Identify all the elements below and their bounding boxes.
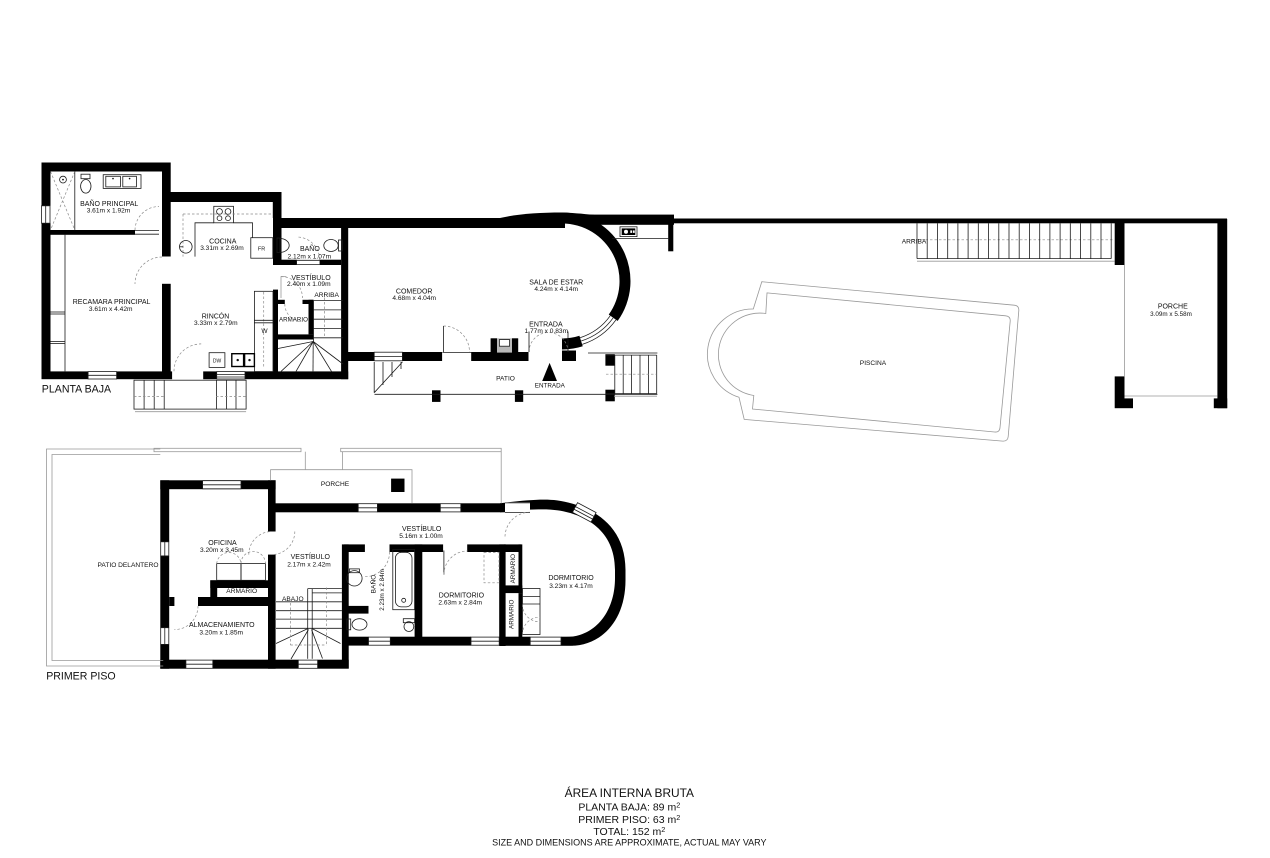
svg-text:PLANTA BAJA: PLANTA BAJA: [42, 384, 112, 396]
svg-text:DW: DW: [213, 358, 222, 364]
svg-text:1.77m x 0.83m: 1.77m x 0.83m: [524, 328, 568, 335]
svg-text:2.63m x 2.84m: 2.63m x 2.84m: [438, 600, 482, 607]
svg-text:FR: FR: [258, 247, 265, 253]
svg-text:OFICINA: OFICINA: [208, 540, 237, 547]
svg-text:3.09m x 5.58m: 3.09m x 5.58m: [1150, 311, 1192, 318]
svg-text:DORMITORIO: DORMITORIO: [548, 575, 594, 582]
svg-text:PISCINA: PISCINA: [860, 360, 887, 367]
svg-text:3.31m x 2.69m: 3.31m x 2.69m: [200, 245, 244, 252]
svg-text:3.23m x 4.17m: 3.23m x 4.17m: [549, 583, 593, 590]
svg-text:ARMARIO: ARMARIO: [509, 600, 516, 629]
svg-text:SIZE AND DIMENSIONS ARE APPROX: SIZE AND DIMENSIONS ARE APPROXIMATE, ACT…: [492, 838, 766, 848]
svg-text:PORCHE: PORCHE: [321, 481, 350, 488]
svg-text:PLANTA BAJA: 89 m2: PLANTA BAJA: 89 m2: [578, 800, 680, 813]
svg-text:VESTÍBULO: VESTÍBULO: [291, 552, 331, 561]
svg-text:3.33m x 2.79m: 3.33m x 2.79m: [194, 320, 238, 327]
svg-text:ARMARIO: ARMARIO: [226, 588, 257, 595]
svg-text:ENTRADA: ENTRADA: [535, 383, 566, 390]
svg-text:DORMITORIO: DORMITORIO: [439, 593, 485, 600]
svg-text:PORCHE: PORCHE: [1158, 304, 1188, 311]
svg-text:ABAJO: ABAJO: [282, 596, 304, 603]
svg-text:TOTAL: 152 m2: TOTAL: 152 m2: [593, 825, 665, 838]
svg-text:PATIO DELANTERO: PATIO DELANTERO: [98, 562, 159, 569]
svg-text:3.20m x 1.85m: 3.20m x 1.85m: [199, 630, 243, 637]
svg-text:RECAMARA PRINCIPAL: RECAMARA PRINCIPAL: [73, 299, 151, 306]
svg-text:VESTÍBULO: VESTÍBULO: [402, 524, 442, 533]
svg-text:3.61m x 4.42m: 3.61m x 4.42m: [89, 306, 133, 313]
svg-text:4.24m x 4.14m: 4.24m x 4.14m: [534, 286, 578, 293]
svg-text:2.12m x 1.07m: 2.12m x 1.07m: [287, 253, 331, 260]
svg-text:ALMACENAMIENTO: ALMACENAMIENTO: [189, 622, 255, 629]
svg-text:ARRIBA: ARRIBA: [902, 238, 927, 245]
svg-text:PRIMER PISO: PRIMER PISO: [46, 671, 115, 683]
svg-text:ARMARIO: ARMARIO: [510, 554, 517, 583]
svg-text:BAÑO: BAÑO: [300, 244, 320, 253]
svg-text:ARRIBA: ARRIBA: [314, 292, 339, 299]
svg-text:ARMARIO: ARMARIO: [279, 317, 308, 324]
svg-text:BAÑO: BAÑO: [369, 575, 378, 594]
svg-text:3.61m x 1.92m: 3.61m x 1.92m: [87, 208, 131, 215]
svg-text:ÁREA INTERNA BRUTA: ÁREA INTERNA BRUTA: [565, 785, 694, 800]
svg-text:2.40m x 1.09m: 2.40m x 1.09m: [287, 281, 331, 288]
svg-text:2.17m x 2.42m: 2.17m x 2.42m: [287, 562, 331, 569]
svg-text:W: W: [261, 328, 268, 335]
svg-text:PATIO: PATIO: [496, 376, 515, 383]
svg-text:2.23m x 2.84m: 2.23m x 2.84m: [379, 569, 386, 611]
svg-text:5.16m x 1.00m: 5.16m x 1.00m: [399, 533, 443, 540]
svg-text:4.68m x 4.04m: 4.68m x 4.04m: [392, 295, 436, 302]
svg-text:3.20m x 3.45m: 3.20m x 3.45m: [200, 547, 244, 554]
